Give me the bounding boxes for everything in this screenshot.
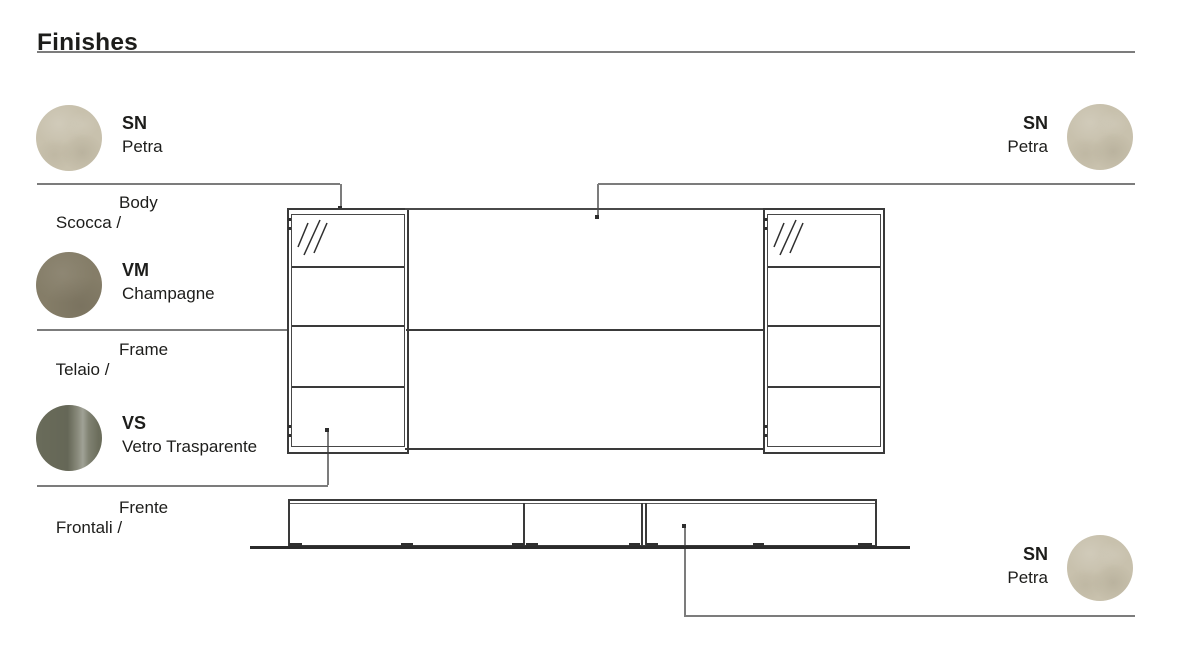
shelf-line [768,386,880,388]
swatch-name-panel-top: Petra [1007,135,1048,159]
panel-top-leader-dot [595,215,599,219]
swatch-code-panel-top: SN [1007,112,1048,135]
floor-line [250,546,910,549]
swatch-code-front: VS [122,412,257,435]
swatch-name-frame: Champagne [122,282,215,306]
swatch-label-frame: VM Champagne [122,259,215,306]
shelf-line [292,266,404,268]
swatch-champagne-frame [36,252,102,318]
section-label-frame-it: Telaio / [56,360,110,379]
swatch-code-body: SN [122,112,163,135]
panel-top-leader-line [597,184,599,215]
hinge-tick [288,425,291,428]
swatch-code-frame: VM [122,259,215,282]
hinge-tick [288,218,291,221]
section-label-front-en: Frente [119,498,168,518]
swatch-name-front: Vetro Trasparente [122,435,257,459]
hinge-tick [764,218,767,221]
shelf-line [768,325,880,327]
title-divider [37,51,1135,53]
swatch-name-body: Petra [122,135,163,159]
front-section-rule [37,485,328,487]
shelf-line [292,325,404,327]
hinge-tick [764,434,767,437]
hinge-tick [764,227,767,230]
base-bottom-rule [684,615,1135,617]
page-title: Finishes [37,27,138,59]
section-label-front-it: Frontali / [56,518,122,537]
swatch-petra-base-bottom [1067,535,1133,601]
swatch-glass-front [36,405,102,471]
base-unit-top-line [290,503,875,504]
section-label-body-it: Scocca / [56,213,121,232]
base-divider [523,503,525,545]
hinge-tick [288,434,291,437]
center-panel-bottom-line [405,448,763,450]
section-label-front: Frontali / Frente [37,498,122,578]
right-glass-cabinet [763,208,885,454]
hinge-tick [764,425,767,428]
finishes-page: Finishes SN Petra Scocca / Body VM Champ… [0,0,1180,664]
shelf-line [292,386,404,388]
left-glass-cabinet [287,208,409,454]
center-panel-mid-line [406,329,763,331]
base-divider [641,503,643,545]
base-divider [645,503,647,545]
base-unit [288,499,877,547]
glass-hatch-icon [772,215,808,257]
swatch-petra-panel-top [1067,104,1133,170]
shelf-line [768,266,880,268]
swatch-label-base-bottom: SN Petra [1007,543,1048,590]
hinge-tick [288,227,291,230]
panel-top-rule [598,183,1135,185]
swatch-name-base-bottom: Petra [1007,566,1048,590]
frame-section-rule [37,329,289,331]
section-label-body-en: Body [119,193,158,213]
body-section-rule [37,183,340,185]
body-leader-line [340,184,342,206]
glass-hatch-icon [296,215,332,257]
section-label-frame-en: Frame [119,340,168,360]
swatch-label-front: VS Vetro Trasparente [122,412,257,459]
swatch-label-body: SN Petra [122,112,163,159]
swatch-petra-body [36,105,102,171]
swatch-code-base-bottom: SN [1007,543,1048,566]
swatch-label-panel-top: SN Petra [1007,112,1048,159]
center-panel-top-line [405,208,763,210]
